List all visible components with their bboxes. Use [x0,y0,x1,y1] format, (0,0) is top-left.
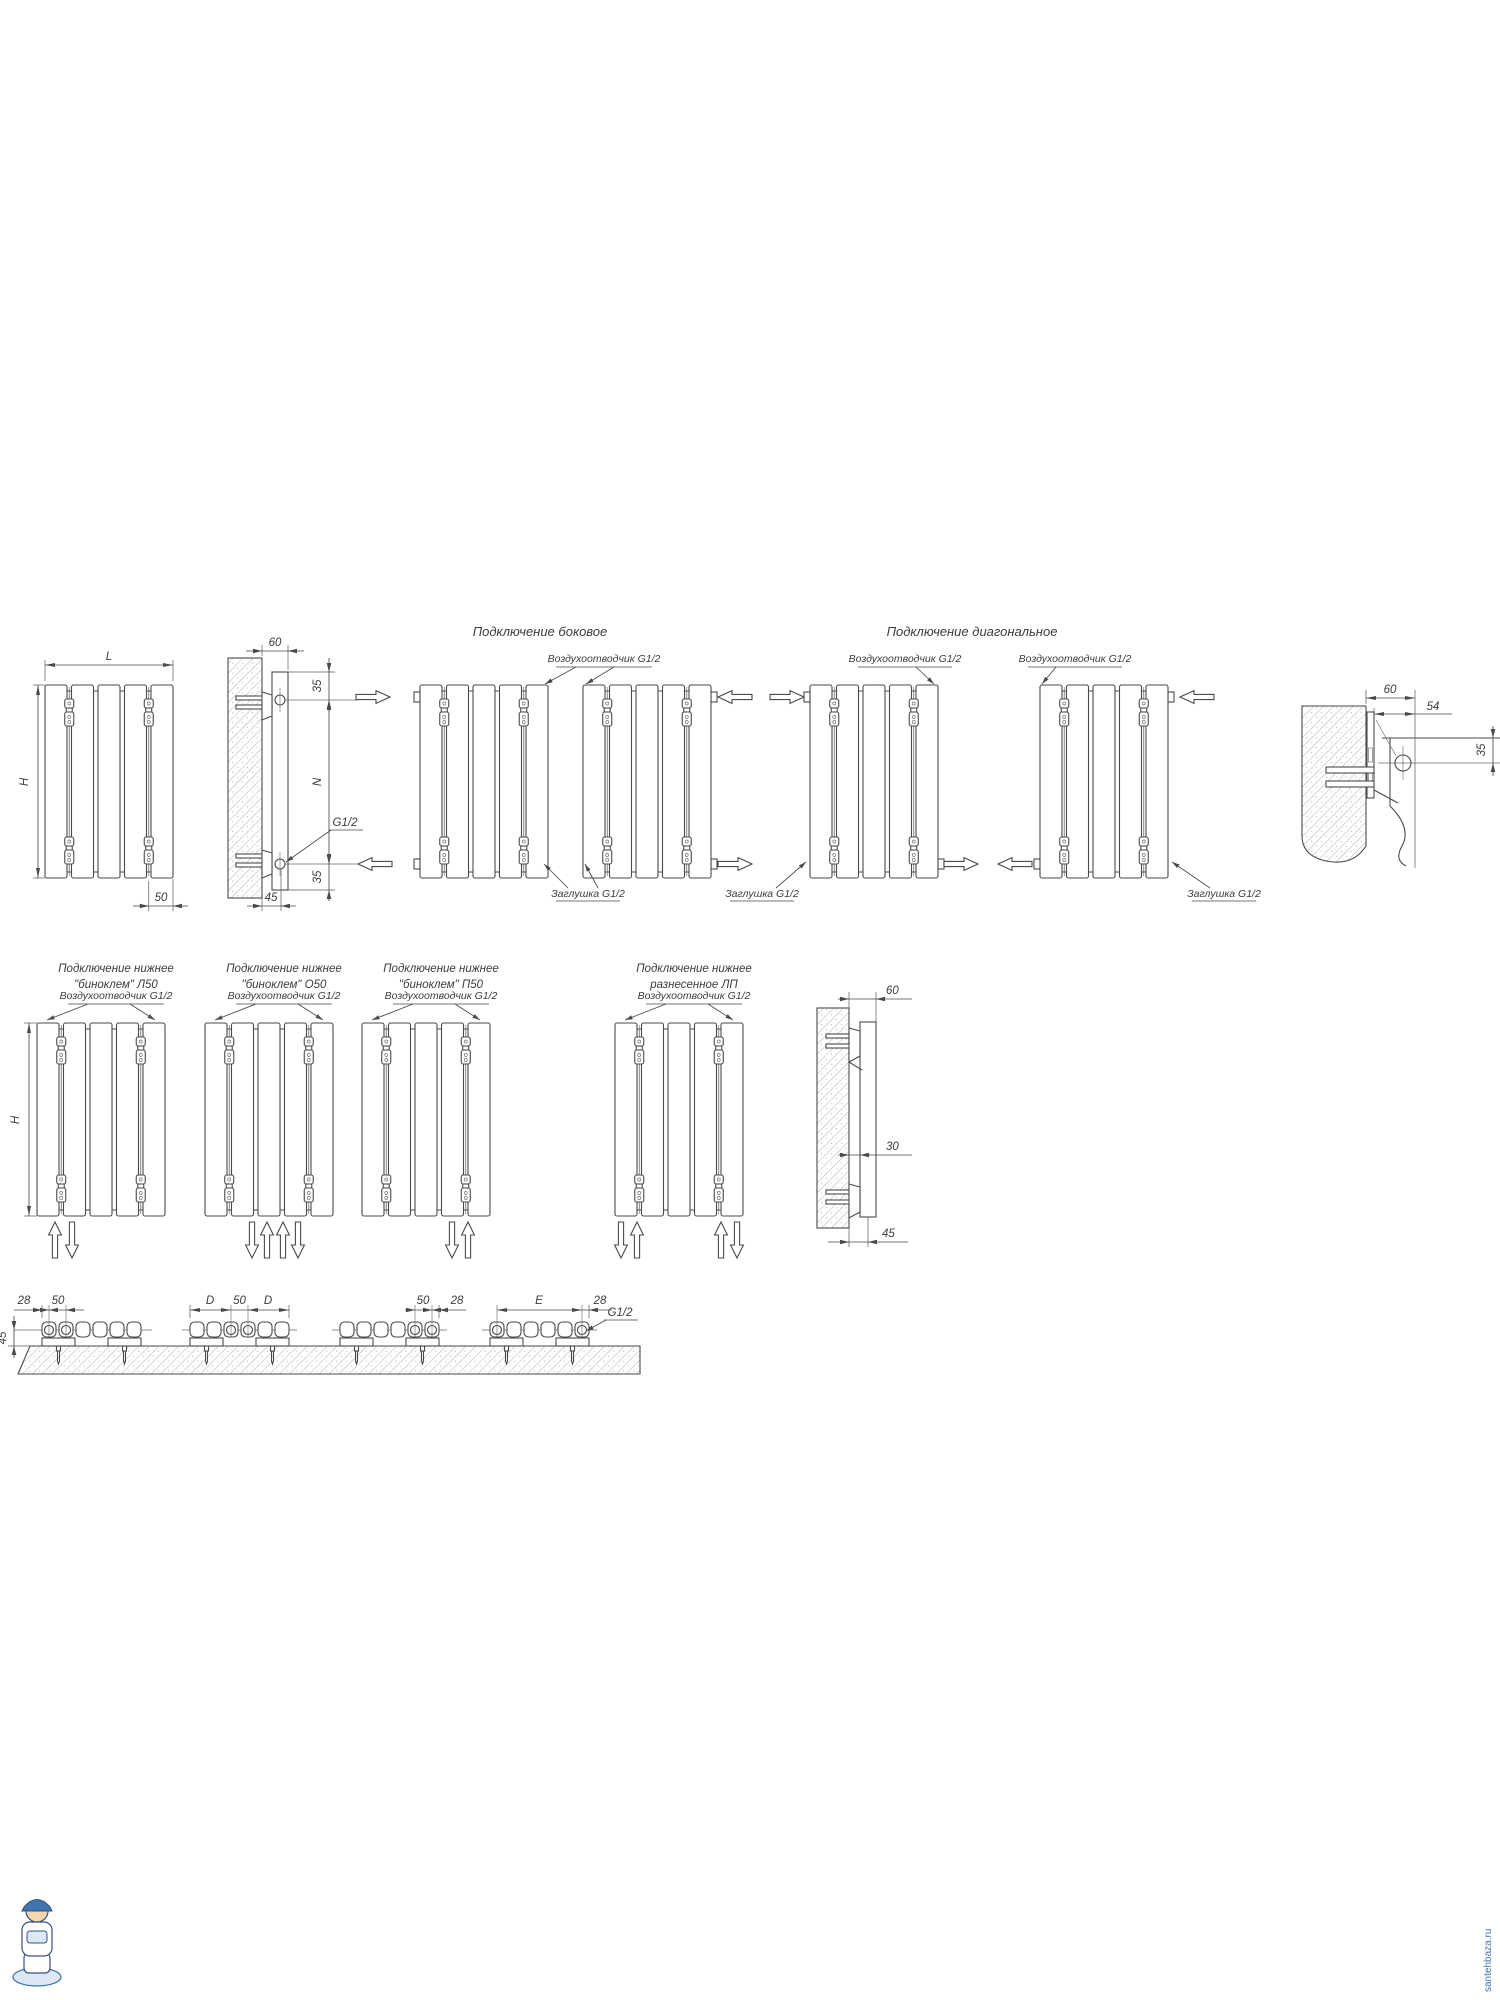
flow-in-arrow-right [1180,691,1214,704]
dim-label-28: 28 [593,1295,607,1307]
dim-label-45: 45 [265,892,278,904]
side-view-wall-mount: 60 35 N 35 45 G1/2 [228,637,363,911]
diagonal-connection-diagram: Подключение диагональное Воздухоотводчик… [725,624,1261,901]
callout-plug-left: Заглушка G1/2 [725,862,806,901]
air-vent-label: Воздухоотводчик G1/2 [1019,653,1132,665]
side-view-bottom-connection: 60 30 45 [817,985,912,1247]
dim-label-E: E [535,1295,543,1307]
flow-in-arrow [770,691,804,704]
air-vent-label: Воздухоотводчик G1/2 [60,990,173,1002]
callout-plug-right: Заглушка G1/2 [1172,862,1261,901]
flow-up-arrow [462,1222,475,1258]
flow-down-arrow [446,1222,459,1258]
dim-label-H: H [19,777,31,786]
plug-label: Заглушка G1/2 [1187,888,1261,900]
watermark-mascot [13,1900,61,1987]
plug-label: Заглушка G1/2 [725,888,799,900]
air-vent-label: Воздухоотводчик G1/2 [385,990,498,1002]
dim-54-detail: 54 [1374,701,1452,714]
flow-down-arrow [292,1222,305,1258]
dim-50: 50 [133,879,188,911]
flow-up-arrow [49,1222,62,1258]
flow-down-arrow [615,1222,628,1258]
flow-out-arrow-right [718,858,752,871]
thread-label: G1/2 [333,817,359,829]
dim-35-top: 35 [288,658,335,712]
dim-label-35: 35 [312,679,324,692]
dim-label-35: 35 [1476,743,1488,756]
bottom-connection-o50: Подключение нижнее "биноклем" О50 Воздух… [205,963,342,1258]
dim-label-60: 60 [886,985,899,997]
plug-label: Заглушка G1/2 [551,888,625,900]
diagonal-connection-title: Подключение диагональное [887,624,1058,639]
bottom-title-3a: Подключение нижнее [383,963,499,975]
side-connection-diagram: Подключение боковое Воздухоотводчик G1/2… [356,624,752,901]
flow-up-arrow [631,1222,644,1258]
watermark-site-text: santehbaza.ru [1483,1929,1494,1992]
callout-air-vent-right: Воздухоотводчик G1/2 [1019,653,1132,684]
dim-label-54: 54 [1427,701,1440,713]
flow-up-arrow [277,1222,290,1258]
flow-down-arrow [246,1222,259,1258]
flow-out-arrow [944,858,978,871]
flow-down-arrow [731,1222,744,1258]
dim-label-60: 60 [269,637,282,649]
dim-35-detail: 35 [1476,726,1495,776]
plan-view-row: 28 50 D 50 D 50 28 [0,1295,640,1374]
bottom-connection-l50: Подключение нижнее "биноклем" Л50 Воздух… [10,963,174,1258]
dim-label-N: N [312,777,324,786]
dim-label-L: L [106,651,112,663]
dim-label-50: 50 [155,892,168,904]
dim-label-45: 45 [882,1228,895,1240]
dim-label-28: 28 [17,1295,31,1307]
dim-label-50: 50 [233,1295,246,1307]
dim-45-plan: 45 [0,1316,30,1358]
dim-label-60: 60 [1384,684,1397,696]
dim-label-D1: D [206,1295,214,1307]
dim-35-bottom: 35 [288,855,335,901]
flow-in-arrow [356,691,390,704]
radiator-installation-drawing: L H 50 60 [0,0,1500,2000]
air-vent-label: Воздухоотводчик G1/2 [228,990,341,1002]
dim-H: H [19,685,45,878]
bottom-connection-p50: Подключение нижнее "биноклем" П50 Воздух… [362,963,499,1258]
callout-air-vent-left: Воздухоотводчик G1/2 [849,653,962,684]
thread-label: G1/2 [608,1307,634,1319]
air-vent-label: Воздухоотводчик G1/2 [638,990,751,1002]
bracket-detail: 60 54 35 [1302,684,1500,868]
dim-label-H: H [10,1115,22,1124]
flow-in-arrow-right [718,691,752,704]
dim-N: N [312,700,329,864]
bottom-title-1a: Подключение нижнее [58,963,174,975]
dim-label-45: 45 [0,1331,9,1344]
front-view-dimensioned: L H 50 [19,651,188,911]
dim-label-D2: D [264,1295,272,1307]
side-connection-title: Подключение боковое [473,624,608,639]
dim-label-35b: 35 [312,870,324,883]
flow-down-arrow [66,1222,79,1258]
air-vent-label: Воздухоотводчик G1/2 [849,653,962,665]
callout-thread-g12: G1/2 [286,817,363,862]
callout-air-vent: Воздухоотводчик G1/2 [545,653,661,684]
flow-out-arrow-right [998,858,1032,871]
drawing-sheet: L H 50 60 [0,0,1500,2000]
bottom-title-4a: Подключение нижнее [636,963,752,975]
flow-up-arrow [715,1222,728,1258]
flow-out-arrow [358,858,392,871]
dim-L: L [45,651,173,681]
dim-label-30: 30 [886,1141,899,1153]
dim-label-50: 50 [52,1295,65,1307]
air-vent-label: Воздухоотводчик G1/2 [548,653,661,665]
dim-label-28: 28 [450,1295,464,1307]
dim-H2: H [10,1023,37,1216]
flow-up-arrow [261,1222,274,1258]
bottom-connection-lp: Подключение нижнее разнесенное ЛП Воздух… [615,963,752,1258]
dim-label-50: 50 [417,1295,430,1307]
bottom-title-2a: Подключение нижнее [226,963,342,975]
